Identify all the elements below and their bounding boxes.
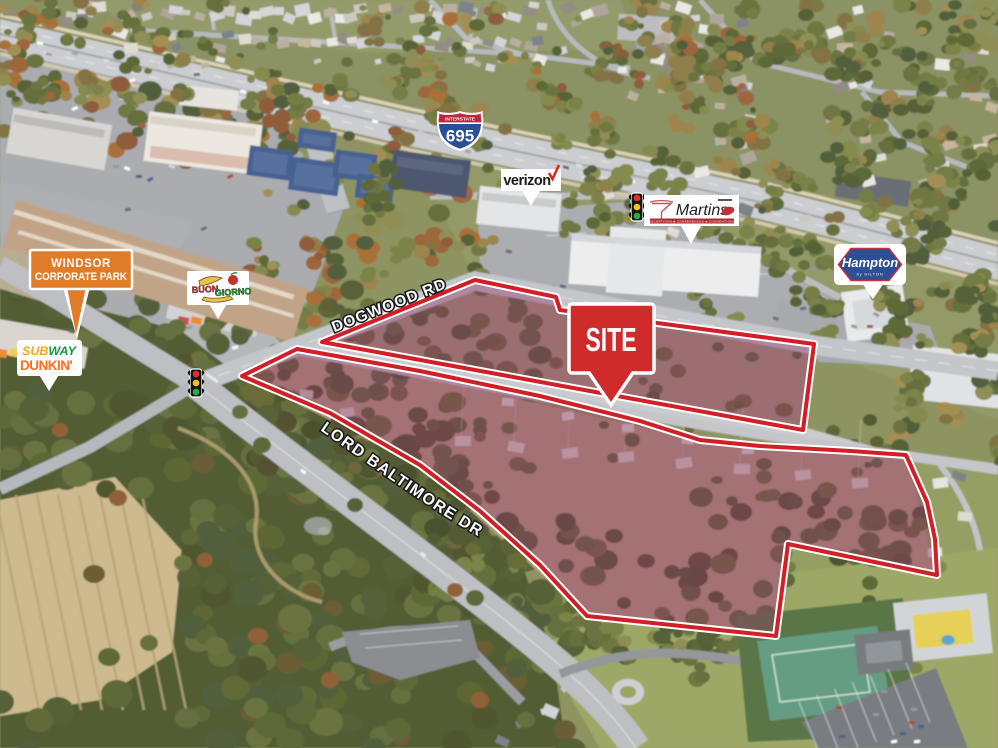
svg-text:SITE: SITE (586, 321, 637, 358)
svg-text:GIORNO: GIORNO (215, 286, 252, 298)
svg-text:CORPORATE PARK: CORPORATE PARK (35, 271, 127, 283)
svg-text:RECEPTIONS ■ CONFERENCES ■ CON: RECEPTIONS ■ CONFERENCES ■ CONVENTIONS (649, 220, 736, 224)
svg-text:695: 695 (446, 127, 474, 146)
svg-text:verizon: verizon (503, 173, 550, 189)
svg-text:by HILTON: by HILTON (857, 272, 884, 277)
svg-text:DUNKIN': DUNKIN' (20, 358, 72, 373)
svg-text:WINDSOR: WINDSOR (51, 258, 111, 270)
svg-text:INTERSTATE: INTERSTATE (445, 116, 476, 122)
svg-text:Hampton: Hampton (842, 255, 898, 270)
svg-text:SUBWAY: SUBWAY (22, 344, 77, 358)
svg-text:Martins: Martins (676, 202, 728, 219)
